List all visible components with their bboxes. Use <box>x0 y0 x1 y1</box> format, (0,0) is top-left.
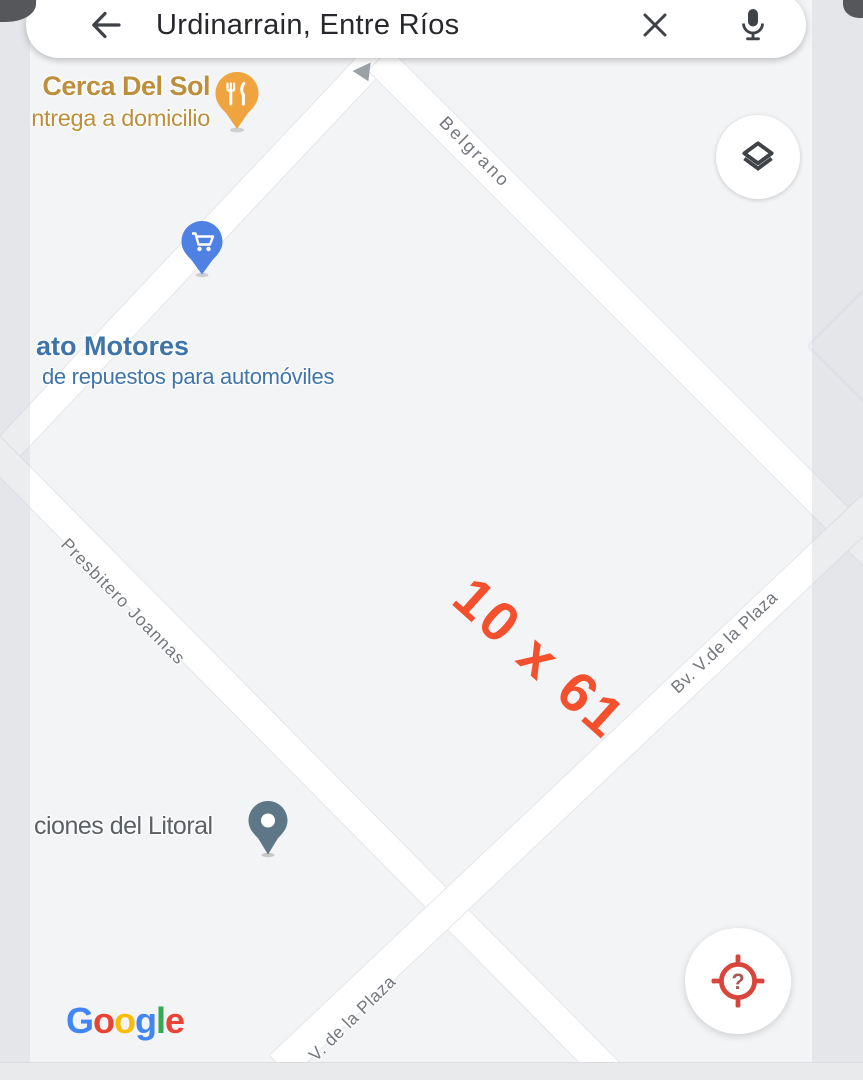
poi-label-ciones-del-litoral[interactable]: ciones del Litoral <box>34 812 213 841</box>
poi-subtitle: de repuestos para automóviles <box>42 363 334 391</box>
street-label-bv-v-de-la-plaza: Bv. V.de la Plaza <box>665 585 785 700</box>
logo-letter: g <box>135 1000 156 1041</box>
close-icon <box>640 10 670 40</box>
search-input[interactable]: Urdinarrain, Entre Ríos <box>156 0 459 58</box>
arrow-left-icon <box>88 8 122 42</box>
clear-search-button[interactable] <box>638 8 672 42</box>
layers-icon <box>738 137 778 177</box>
back-button[interactable] <box>88 8 122 42</box>
search-bar[interactable]: Urdinarrain, Entre Ríos <box>26 0 806 58</box>
bottom-edge-strip <box>0 1062 863 1080</box>
street-label-belgrano: Belgrano <box>435 112 513 190</box>
logo-letter: G <box>66 1000 93 1041</box>
lot-size-text: 10 x 61 <box>441 564 639 751</box>
logo-letter: o <box>93 1000 114 1041</box>
my-location-button[interactable]: ? <box>685 928 791 1034</box>
left-edge-band <box>0 0 30 1062</box>
location-searching-icon: ? <box>710 953 766 1009</box>
restaurant-pin-icon[interactable] <box>214 71 260 133</box>
poi-title: ato Motores <box>36 330 334 363</box>
shopping-pin-icon[interactable] <box>180 220 224 278</box>
road-presbitero-joannas <box>0 432 631 1080</box>
microphone-icon <box>739 7 767 43</box>
poi-label-cerca-del-sol[interactable]: Cerca Del Sol ntrega a domicilio <box>0 70 210 133</box>
locate-question-glyph: ? <box>731 969 744 994</box>
poi-label-ato-motores[interactable]: ato Motores de repuestos para automóvile… <box>36 330 334 391</box>
place-pin-icon[interactable] <box>247 800 289 858</box>
logo-letter: l <box>156 1000 165 1041</box>
logo-letter: o <box>114 1000 135 1041</box>
map-layers-button[interactable] <box>716 115 800 199</box>
google-logo: Google <box>66 1000 184 1042</box>
map-view[interactable]: Belgrano Presbitero Joannas Bv. V.de la … <box>0 0 863 1080</box>
lot-size-annotation: 10 x 61 <box>430 560 650 755</box>
voice-search-button[interactable] <box>738 8 768 42</box>
logo-letter: e <box>165 1000 184 1041</box>
poi-title: Cerca Del Sol <box>0 70 210 103</box>
poi-subtitle: ntrega a domicilio <box>0 103 210 133</box>
street-label-presbitero-joannas: Presbitero Joannas <box>56 534 183 663</box>
right-edge-band <box>812 0 863 1062</box>
